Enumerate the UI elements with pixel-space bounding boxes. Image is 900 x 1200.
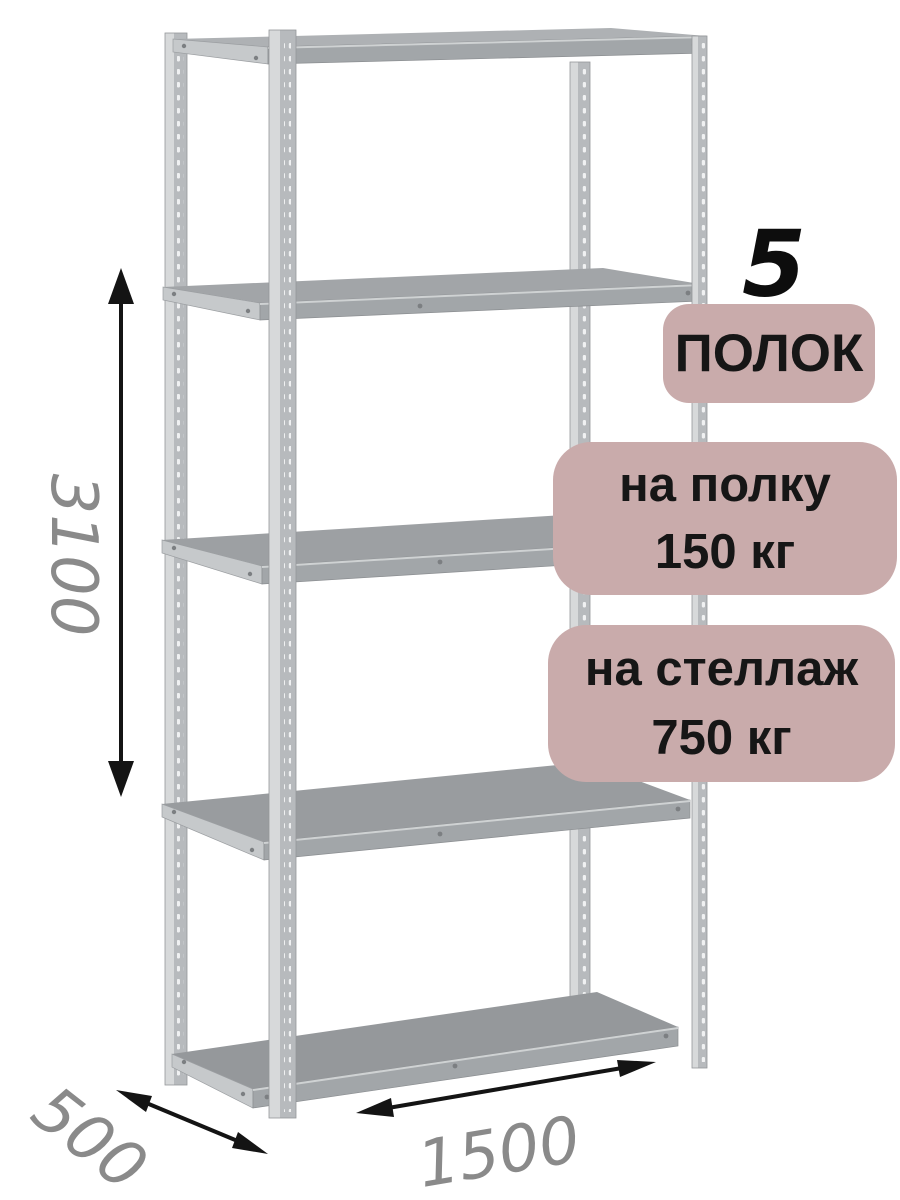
shelving-rack-illustration <box>0 0 900 1200</box>
shelf-count-number: 5 <box>742 211 806 318</box>
post-front-left <box>269 30 296 1118</box>
shelf-2 <box>163 268 700 320</box>
shelf-load-badge: на полку 150 кг <box>553 442 897 595</box>
height-arrow-icon <box>108 268 134 797</box>
rack-load-badge: на стеллаж 750 кг <box>548 625 895 782</box>
shelf-count-label: ПОЛОК <box>675 323 864 384</box>
rack-load-line2: 750 кг <box>651 704 791 773</box>
rack-load-line1: на стеллаж <box>585 635 858 704</box>
shelf-5 <box>172 992 678 1108</box>
shelf-load-line2: 150 кг <box>655 519 795 586</box>
shelf-load-line1: на полку <box>619 452 831 519</box>
shelf-count-badge: ПОЛОК <box>663 304 875 403</box>
product-image: 3100 1500 500 5 ПОЛОК на полку 150 кг на… <box>0 0 900 1200</box>
shelf-1 <box>173 28 706 64</box>
height-dimension-label: 3100 <box>36 474 110 637</box>
